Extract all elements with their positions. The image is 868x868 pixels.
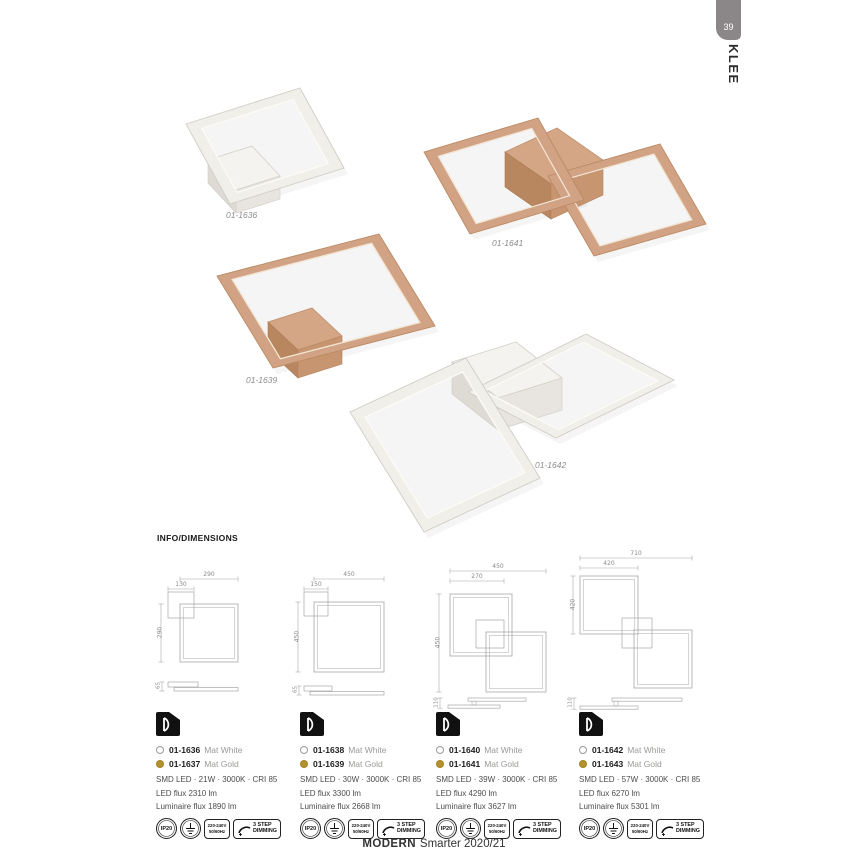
dimmer-curve-icon [237,822,251,836]
dimmer-curve-icon [381,822,395,836]
finish-name: Mat White [348,745,386,755]
finish-name: Mat Gold [348,759,383,769]
dimmer-curve-icon [517,822,531,836]
dimmer-curve-icon [660,822,674,836]
voltage-badge: 220-240V50/60Hz [348,819,374,839]
product-photo-01-1639 [217,234,439,378]
footer-tagline: Smarter 2020/21 [420,838,506,850]
dimming-badge: 3 STEPDIMMING [656,819,704,839]
certification-badges: IP20 220-240V50/60Hz 3 STEPDIMMING [579,818,719,839]
dim-height: 420 [570,592,577,618]
certification-badges: IP20 220-240V50/60Hz 3 STEPDIMMING [436,818,576,839]
finish-name: Mat Gold [627,759,662,769]
product-photo-01-1636 [186,88,348,213]
dimming-badge: 3 STEPDIMMING [513,819,561,839]
page-number-tab: 39 [716,0,741,40]
info-dimensions-title: INFO/DIMENSIONS [157,533,238,543]
led-spec: SMD LED · 30W · 3000K · CRI 85 [300,775,440,784]
luminaire-flux: Luminaire flux 3627 lm [436,802,576,811]
dimming-badge: 3 STEPDIMMING [233,819,281,839]
dimension-drawing-01-1636: 290 130 290 65 [152,562,252,712]
voltage-badge: 220-240V50/60Hz [627,819,653,839]
product-code: 01-1641 [449,759,480,769]
variant-row: 01-1638 Mat White [300,744,440,755]
dim-width-total: 450 [485,563,511,570]
spec-block-01-1636: 01-1636 Mat White 01-1637 Mat Gold SMD L… [156,712,296,839]
led-spec: SMD LED · 57W · 3000K · CRI 85 [579,775,719,784]
finish-dot-gold [300,760,308,768]
dim-width-inner: 420 [596,560,622,567]
dim-depth: 65 [156,673,163,699]
variant-row: 01-1639 Mat Gold [300,758,440,769]
voltage-badge: 220-240V50/60Hz [484,819,510,839]
dim-width-total: 710 [623,550,649,557]
ip-rating-badge: IP20 [300,818,321,839]
product-photo-01-1641 [424,118,710,262]
product-code: 01-1636 [169,745,200,755]
finish-dot-white [436,746,444,754]
product-code: 01-1640 [449,745,480,755]
spec-block-01-1638: 01-1638 Mat White 01-1639 Mat Gold SMD L… [300,712,440,839]
dim-height: 290 [157,620,164,646]
product-code: 01-1638 [313,745,344,755]
led-flux: LED flux 2310 lm [156,789,296,798]
earth-ground-icon [180,818,201,839]
ceiling-mount-icon [436,712,460,736]
earth-ground-icon [460,818,481,839]
led-flux: LED flux 6270 lm [579,789,719,798]
dim-height: 450 [294,624,301,650]
product-label: 01-1636 [226,210,257,220]
finish-dot-gold [579,760,587,768]
dimension-drawing-01-1640: 450 270 450 110 [430,556,554,716]
luminaire-flux: Luminaire flux 5301 lm [579,802,719,811]
dimension-drawing-lines [152,562,252,710]
ip-rating-badge: IP20 [436,818,457,839]
dim-height: 450 [435,630,442,656]
luminaire-flux: Luminaire flux 2668 lm [300,802,440,811]
dim-depth: 65 [293,677,300,703]
led-flux: LED flux 4290 lm [436,789,576,798]
product-label: 01-1639 [246,375,277,385]
spec-block-01-1640: 01-1640 Mat White 01-1641 Mat Gold SMD L… [436,712,576,839]
product-label: 01-1641 [492,238,523,248]
product-photo-01-1642 [350,334,678,538]
dim-width-inner: 150 [303,581,329,588]
ceiling-mount-icon [579,712,603,736]
earth-ground-icon [324,818,345,839]
footer-brand: MODERN [362,838,416,850]
product-code: 01-1639 [313,759,344,769]
finish-name: Mat White [484,745,522,755]
product-code: 01-1643 [592,759,623,769]
led-spec: SMD LED · 39W · 3000K · CRI 85 [436,775,576,784]
voltage-badge: 220-240V50/60Hz [204,819,230,839]
variant-row: 01-1637 Mat Gold [156,758,296,769]
ip-rating-badge: IP20 [156,818,177,839]
finish-dot-gold [156,760,164,768]
luminaire-flux: Luminaire flux 1890 lm [156,802,296,811]
ceiling-mount-icon [156,712,180,736]
finish-name: Mat Gold [204,759,239,769]
variant-row: 01-1636 Mat White [156,744,296,755]
series-name: KLEE [716,44,741,85]
finish-name: Mat White [204,745,242,755]
finish-name: Mat Gold [484,759,519,769]
variant-row: 01-1641 Mat Gold [436,758,576,769]
dim-width-total: 290 [196,571,222,578]
led-flux: LED flux 3300 lm [300,789,440,798]
variant-row: 01-1643 Mat Gold [579,758,719,769]
dimension-drawing-lines [566,546,702,718]
finish-dot-white [579,746,587,754]
product-code: 01-1637 [169,759,200,769]
catalog-footer: MODERNSmarter 2020/21 [0,838,868,850]
dimming-badge: 3 STEPDIMMING [377,819,425,839]
catalog-page: 39 KLEE [0,0,868,868]
finish-dot-white [156,746,164,754]
dimension-drawing-lines [430,556,554,716]
led-spec: SMD LED · 21W · 3000K · CRI 85 [156,775,296,784]
ceiling-mount-icon [300,712,324,736]
dimension-drawing-01-1642: 710 420 420 110 [566,546,702,718]
dim-width-inner: 270 [464,573,490,580]
finish-dot-white [300,746,308,754]
earth-ground-icon [603,818,624,839]
finish-dot-gold [436,760,444,768]
certification-badges: IP20 220-240V50/60Hz 3 STEPDIMMING [300,818,440,839]
dim-width-inner: 130 [168,581,194,588]
product-code: 01-1642 [592,745,623,755]
variant-row: 01-1642 Mat White [579,744,719,755]
product-label: 01-1642 [535,460,566,470]
page-number: 39 [723,22,733,32]
variant-row: 01-1640 Mat White [436,744,576,755]
spec-block-01-1642: 01-1642 Mat White 01-1643 Mat Gold SMD L… [579,712,719,839]
certification-badges: IP20 220-240V50/60Hz 3 STEPDIMMING [156,818,296,839]
dimension-drawing-01-1638: 450 150 450 65 [290,562,402,712]
finish-name: Mat White [627,745,665,755]
dim-width-total: 450 [336,571,362,578]
ip-rating-badge: IP20 [579,818,600,839]
